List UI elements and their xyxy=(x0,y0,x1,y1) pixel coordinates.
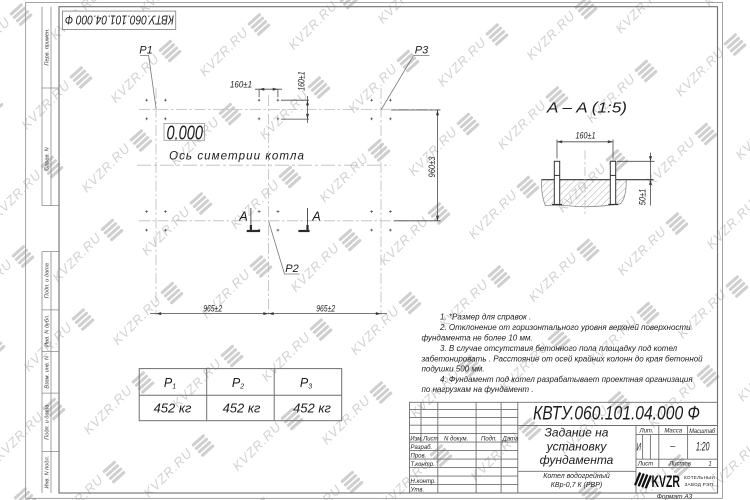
svg-text:ЗАВОД РЭП: ЗАВОД РЭП xyxy=(685,482,714,487)
svg-text:965±2: 965±2 xyxy=(316,303,335,313)
svg-text:Подп.: Подп. xyxy=(481,437,497,443)
svg-text:Инв. N подл.: Инв. N подл. xyxy=(45,456,51,489)
svg-text:по нагрузкам на фундамент .: по нагрузкам на фундамент . xyxy=(422,385,534,394)
svg-text:A: A xyxy=(311,210,320,224)
svg-text:КВр-0,7 К (РВР): КВр-0,7 К (РВР) xyxy=(551,482,602,489)
svg-text:960±3: 960±3 xyxy=(427,157,437,178)
svg-text:фундамента: фундамента xyxy=(540,453,614,467)
svg-text:Листов: Листов xyxy=(668,462,691,468)
svg-text:Н.контр.: Н.контр. xyxy=(411,479,436,485)
svg-text:Подп. и дата: Подп. и дата xyxy=(45,405,51,440)
svg-text:1. *Размер для справок .: 1. *Размер для справок . xyxy=(440,313,531,322)
svg-text:452 кг: 452 кг xyxy=(223,401,261,416)
svg-text:Т.контр.: Т.контр. xyxy=(411,462,435,468)
svg-text:Лист: Лист xyxy=(637,462,653,468)
svg-text:1: 1 xyxy=(708,462,711,468)
svg-text:50±1: 50±1 xyxy=(638,189,648,206)
svg-text:Задание на: Задание на xyxy=(545,425,609,439)
svg-text:установку: установку xyxy=(546,439,608,453)
svg-text:подушки 500 мм.: подушки 500 мм. xyxy=(422,364,485,373)
svg-text:P3: P3 xyxy=(415,45,429,57)
svg-text:2. Отклонение от горизонтальн: 2. Отклонение от горизонтального уровня … xyxy=(439,323,691,332)
svg-text:КОТЕЛЬНЫЙ: КОТЕЛЬНЫЙ xyxy=(684,473,715,480)
svg-text:Пров.: Пров. xyxy=(411,454,427,460)
svg-text:Масса: Масса xyxy=(664,429,682,435)
svg-text:A: A xyxy=(238,210,247,224)
svg-text:1:20: 1:20 xyxy=(696,442,710,454)
svg-text:0.000: 0.000 xyxy=(167,122,204,144)
svg-text:Ось симетрии котла: Ось симетрии котла xyxy=(169,149,305,162)
svg-text:забетонировать . Расстояние от: забетонировать . Расстояние от осей край… xyxy=(421,355,704,364)
svg-text:Разраб.: Разраб. xyxy=(411,445,433,451)
svg-text:Лит.: Лит. xyxy=(638,429,653,435)
svg-text:Перв. примен.: Перв. примен. xyxy=(45,28,51,65)
svg-text:Инв. N дубл.: Инв. N дубл. xyxy=(45,315,51,347)
svg-text:Утв.: Утв. xyxy=(410,488,425,494)
svg-text:–: – xyxy=(669,441,676,451)
svg-text:452 кг: 452 кг xyxy=(154,401,192,416)
svg-text:фундамента не более 10 мм.: фундамента не более 10 мм. xyxy=(422,334,533,343)
svg-text:Масштаб: Масштаб xyxy=(689,429,716,435)
svg-text:P1: P1 xyxy=(139,45,152,57)
svg-text:965±2: 965±2 xyxy=(203,303,222,313)
svg-text:Подп. и дата: Подп. и дата xyxy=(45,263,51,298)
svg-text:Взам. инв. N: Взам. инв. N xyxy=(45,355,51,389)
svg-text:Дата: Дата xyxy=(502,437,519,443)
svg-text:160±1: 160±1 xyxy=(296,71,306,91)
svg-text:Котел водогрейный: Котел водогрейный xyxy=(543,472,610,480)
svg-text:P2: P2 xyxy=(285,263,298,275)
svg-text:160±1: 160±1 xyxy=(576,130,596,140)
svg-text:КВТУ.060.101.04.000 Ф: КВТУ.060.101.04.000 Ф xyxy=(65,12,174,27)
svg-text:Справ. N: Справ. N xyxy=(45,146,51,170)
svg-text:3. В случае отсутствия бетонн: 3. В случае отсутствия бетонного пола пл… xyxy=(440,344,678,353)
svg-text:Изм.Лист: Изм.Лист xyxy=(410,437,438,443)
svg-text:4. Фундамент под котел разраб: 4. Фундамент под котел разрабатывает про… xyxy=(440,375,693,384)
svg-text:КВТУ.060.101.04.000 Ф: КВТУ.060.101.04.000 Ф xyxy=(533,403,700,424)
svg-text:N докум.: N докум. xyxy=(444,437,468,443)
svg-text:KVZR: KVZR xyxy=(652,473,681,491)
svg-text:Формат А3: Формат А3 xyxy=(657,494,693,500)
svg-text:И: И xyxy=(636,442,641,454)
svg-text:160±1: 160±1 xyxy=(230,79,252,89)
svg-text:452 кг: 452 кг xyxy=(293,401,331,416)
svg-text:A – A (1:5): A – A (1:5) xyxy=(546,100,627,117)
